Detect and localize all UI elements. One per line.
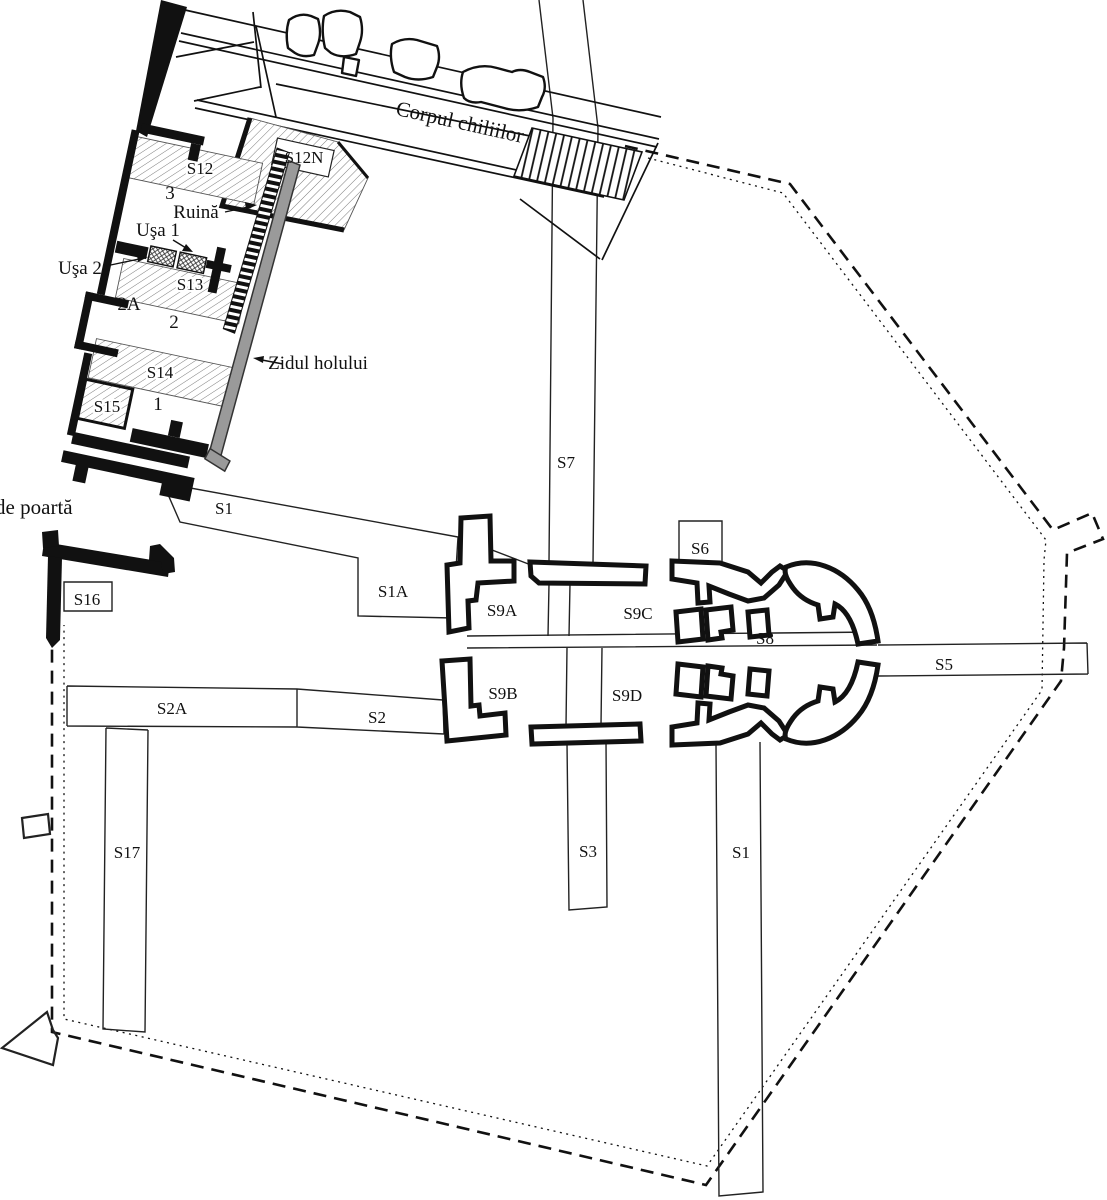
trench-s12-label: S12 [187,159,213,178]
door2-label: Uşa 2 [58,258,102,279]
rubble-blob-2 [323,11,362,57]
trench-s15-label: S15 [94,397,120,416]
trench-s9b-label: S9B [488,684,517,703]
room2a-label: 2A [117,294,141,315]
church-south-transverse-wall [531,724,641,744]
trench-s14-label: S14 [147,363,174,382]
room2-label: 2 [169,312,179,333]
hall-wall-label: Zidul holului [268,353,368,374]
altar-wall-fragment-se [748,669,769,696]
trench-s1-lower-label: S1 [732,843,750,862]
church-north-transverse-wall [530,562,646,584]
outwork-wall-vertical [46,556,62,648]
trench-s5-label: S5 [935,655,953,674]
trench-s1-upper-label: S1 [215,499,233,518]
trench-s13-label: S13 [177,275,203,294]
gate-tower-label: Turnul de poartă [0,495,73,519]
trench-s2a-label: S2A [157,699,188,718]
trench-s2-label: S2 [368,708,386,727]
rubble-blob-3 [391,39,439,79]
trench-s9d-label: S9D [612,686,642,705]
trench-s6-label: S6 [691,539,709,558]
trench-s7-label: S7 [557,453,575,472]
trench-s3-label: S3 [579,842,597,861]
door1-label: Uşa 1 [136,220,180,241]
altar-wall-fragment-sw [676,664,703,697]
ruin-label: Ruină [173,202,219,223]
trench-s9c-label: S9C [623,604,652,623]
outwork-wall-top-stub [42,530,59,548]
trench-s16-label: S16 [74,590,100,609]
room3-label: 3 [165,183,175,204]
excavation-plan: Corpul chiliilor Turnul de poartă Ruină … [0,0,1107,1200]
altar-wall-fragment-nw [676,609,703,642]
room1-label: 1 [153,394,163,415]
trench-s17-label: S17 [114,843,141,862]
trench-s12n-label: S12N [285,148,324,167]
rubble-blob-2-stub [342,57,359,76]
rubble-blob-1 [287,15,320,56]
trench-s1a-label: S1A [378,582,409,601]
trench-s8-label: S8 [756,629,774,648]
trench-s9a-label: S9A [487,601,518,620]
